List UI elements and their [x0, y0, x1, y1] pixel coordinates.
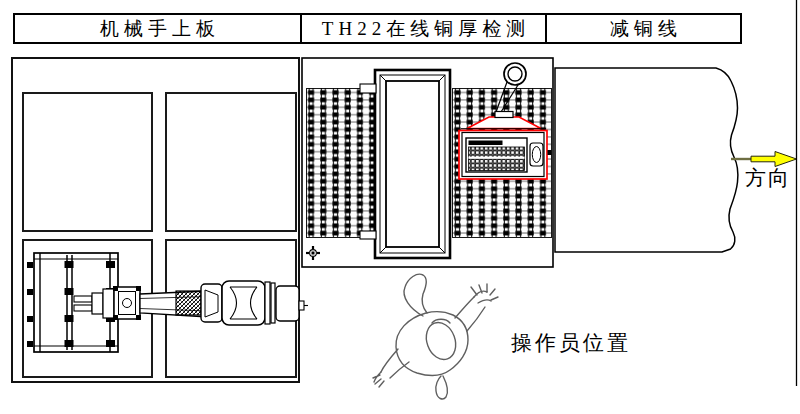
header-label-copper-reduction-line: 减铜线 [610, 16, 682, 42]
operator-position-label: 操作员位置 [511, 329, 631, 357]
direction-label: 方向 [745, 164, 791, 192]
cad-drawing-layer [0, 0, 800, 414]
layout-diagram: 机械手上板 TH22在线铜厚检测 减铜线 [0, 0, 800, 414]
header-label-robot-loading: 机械手上板 [100, 16, 220, 42]
conveyor-left [306, 88, 374, 237]
header-cell-copper-reduction-line: 减铜线 [545, 13, 742, 44]
header-label-th22-detection: TH22在线铜厚检测 [322, 16, 530, 42]
keyboard-icon [466, 138, 527, 172]
copper-reduction-line-outline [555, 68, 738, 252]
mouse-icon [530, 143, 543, 166]
robot-arm-drawing [27, 253, 308, 352]
th22-machine [302, 58, 553, 267]
operator-figure [373, 274, 498, 399]
header-cell-th22-detection: TH22在线铜厚检测 [300, 13, 547, 44]
header-cell-robot-loading: 机械手上板 [13, 13, 302, 44]
